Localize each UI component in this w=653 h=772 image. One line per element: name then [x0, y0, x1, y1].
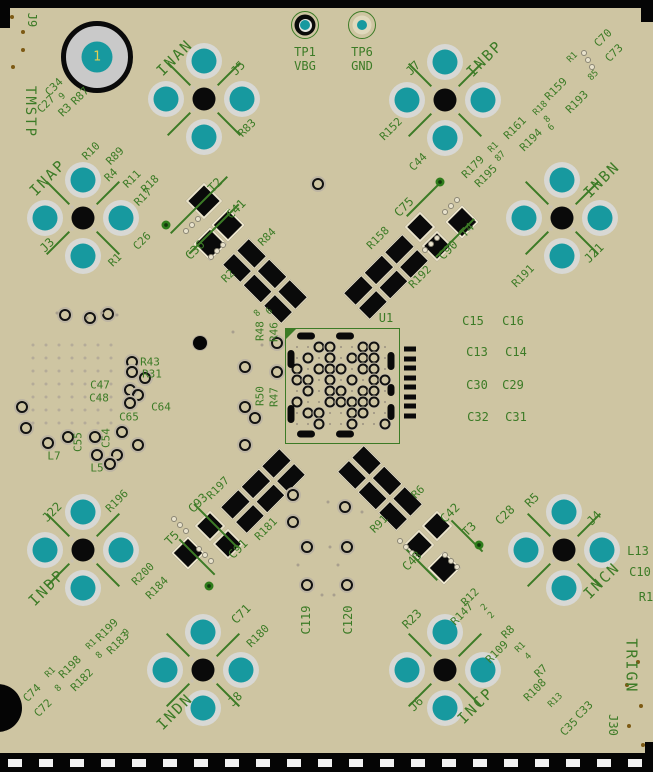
bga-via — [347, 419, 358, 430]
bga-via — [358, 342, 369, 353]
bga-dot — [318, 357, 320, 359]
label-c119: C119 — [300, 606, 312, 635]
solder-pad-dot — [220, 242, 226, 248]
connector-center-pad-j6-incp[interactable] — [434, 659, 457, 682]
connector-pad-j4-incn[interactable] — [552, 576, 577, 601]
label-c32: C32 — [467, 411, 489, 423]
bga-dot — [340, 357, 342, 359]
label-l5: L5 — [90, 463, 103, 474]
edge-dash — [163, 759, 177, 767]
connector-pad-j4-incn[interactable] — [552, 500, 577, 525]
connector-pad-j6-incp[interactable] — [395, 658, 420, 683]
solder-pad-dot — [448, 558, 454, 564]
connector-pad-j3-inap[interactable] — [33, 206, 58, 231]
bga-via — [347, 408, 358, 419]
label-c30: C30 — [466, 379, 488, 391]
connector-center-pad-j3-inap[interactable] — [72, 207, 95, 230]
fiducial-dot — [627, 724, 631, 728]
solder-pad-dot — [428, 241, 434, 247]
label-trign: TRIGN — [624, 638, 639, 693]
bga-dot — [373, 423, 375, 425]
bga-via — [314, 408, 325, 419]
pad-corner-tick — [213, 658, 216, 661]
label-c29: C29 — [502, 379, 524, 391]
pad-dot — [232, 331, 235, 334]
bga-via — [358, 408, 369, 419]
connector-pad-j21-inbn[interactable] — [588, 206, 613, 231]
via-field-dot — [71, 357, 74, 360]
via-field-dot — [32, 370, 35, 373]
bga-dot — [340, 379, 342, 381]
connector-center-pad-j21-inbn[interactable] — [551, 207, 574, 230]
green-via — [475, 541, 484, 550]
via-field-dot — [71, 370, 74, 373]
via — [341, 541, 353, 553]
label-c71: C71 — [229, 602, 253, 626]
edge-dash — [628, 759, 642, 767]
connector-pad-ring — [103, 200, 139, 236]
bga-via — [369, 386, 380, 397]
connector-pad-j7-inbp[interactable] — [471, 88, 496, 113]
label-inbp: INBP — [464, 38, 506, 80]
pad-corner-tick — [93, 560, 96, 563]
label-r197: R197 — [205, 475, 232, 502]
via-field-dot — [97, 344, 100, 347]
bga-via — [347, 353, 358, 364]
via-field-dot — [97, 422, 100, 425]
bga-via — [369, 397, 380, 408]
bga-dot — [351, 368, 353, 370]
label-c28: C28 — [493, 503, 517, 527]
bga-pad — [297, 431, 315, 438]
pad-corner-tick — [433, 680, 436, 683]
pad-corner-tick — [550, 228, 553, 231]
connector-pad-j3-inap[interactable] — [71, 244, 96, 269]
edge-dash — [380, 759, 394, 767]
label-r5: R5 — [523, 491, 542, 510]
label-c14: C14 — [505, 346, 527, 358]
via-field-dot — [58, 396, 61, 399]
label-vbg: VBG — [294, 60, 316, 72]
pad-dot — [261, 344, 264, 347]
bga-dot — [384, 346, 386, 348]
bga-dot — [307, 346, 309, 348]
connector-pad-j5-inan[interactable] — [192, 125, 217, 150]
pad-dot — [56, 312, 59, 315]
edge-dash — [132, 759, 146, 767]
label-r46: R46 — [269, 322, 280, 342]
label-r108: R108 — [522, 677, 549, 704]
bga-pad — [388, 404, 395, 420]
via-field-dot — [84, 409, 87, 412]
via — [271, 366, 283, 378]
label-j9: J9 — [26, 13, 38, 27]
bga-via — [303, 408, 314, 419]
label-r47: R47 — [269, 387, 280, 407]
ic-pin — [404, 413, 416, 418]
via — [91, 449, 103, 461]
bga-dot — [351, 346, 353, 348]
connector-pad-ring — [506, 200, 542, 236]
label-85: 85 — [587, 69, 601, 83]
label-t3: T3 — [460, 520, 479, 539]
bga-pad — [388, 384, 395, 396]
edge-dash — [287, 759, 301, 767]
label-4: 4 — [524, 652, 534, 662]
test-point-tp6[interactable] — [348, 11, 376, 39]
label-r184: R184 — [144, 575, 171, 602]
label-tmstp: TMSTP — [23, 86, 37, 138]
bga-via — [325, 397, 336, 408]
pad-corner-tick — [71, 206, 74, 209]
connector-pad-j7-inbp[interactable] — [433, 126, 458, 151]
via — [239, 439, 251, 451]
pad-dot — [86, 317, 89, 320]
bga-via — [358, 364, 369, 375]
via — [287, 489, 299, 501]
pad-corner-tick — [214, 87, 217, 90]
bga-dot — [307, 401, 309, 403]
via-field-dot — [45, 383, 48, 386]
pad-dot — [321, 594, 324, 597]
via — [116, 426, 128, 438]
test-point-pad[interactable] — [300, 20, 310, 30]
connector-pad-ring — [508, 532, 544, 568]
label-r193: R193 — [564, 89, 591, 116]
edge-dash — [473, 759, 487, 767]
via-field-dot — [71, 396, 74, 399]
ic-pin — [404, 385, 416, 390]
label-c65: C65 — [119, 412, 139, 423]
pad-corner-tick — [192, 87, 195, 90]
bga-dot — [340, 423, 342, 425]
pad-dot — [327, 501, 330, 504]
pad-corner-tick — [572, 228, 575, 231]
pad-dot — [361, 511, 364, 514]
connector-pad-ring — [427, 690, 463, 726]
edge-dash — [8, 759, 22, 767]
label-8: 8 — [95, 651, 105, 661]
connector-pad-j8-indn[interactable] — [229, 658, 254, 683]
connector-pad-ring — [427, 44, 463, 80]
bga-dot — [296, 357, 298, 359]
bga-via — [303, 375, 314, 386]
pad-corner-tick — [574, 538, 577, 541]
bga-dot — [340, 412, 342, 414]
edge-dash — [70, 759, 84, 767]
solder-pad-dot — [183, 528, 189, 534]
ic-pin — [404, 347, 416, 352]
via-field-dot — [110, 409, 113, 412]
label-c47: C47 — [90, 380, 110, 391]
label-r84: R84 — [256, 226, 278, 248]
via-field-dot — [58, 409, 61, 412]
via-field-dot — [84, 383, 87, 386]
bga-dot — [296, 390, 298, 392]
connector-pad-j5-inan[interactable] — [230, 87, 255, 112]
pad-corner-tick — [455, 110, 458, 113]
bga-via — [325, 364, 336, 375]
connector-pad-j5-inan[interactable] — [192, 49, 217, 74]
label-c120: C120 — [342, 606, 354, 635]
label-r194: R194 — [518, 127, 545, 154]
solder-pad-dot — [442, 209, 448, 215]
via-field-dot — [32, 396, 35, 399]
label-j22: J22 — [40, 500, 64, 524]
edge-dash — [194, 759, 208, 767]
connector-pad-j21-inbn[interactable] — [512, 206, 537, 231]
bga-dot — [384, 357, 386, 359]
solder-pad-dot — [214, 248, 220, 254]
bga-dot — [329, 423, 331, 425]
test-point-tp1[interactable] — [291, 11, 319, 39]
connector-center-pad-j7-inbp[interactable] — [434, 89, 457, 112]
label-r43: R43 — [140, 357, 160, 368]
solder-pad-dot — [454, 564, 460, 570]
label-inbn: INBN — [581, 159, 623, 201]
via-field-dot — [32, 344, 35, 347]
label-c48: C48 — [89, 393, 109, 404]
fiducial-dot — [639, 704, 643, 708]
connector-pad-j8-indn[interactable] — [153, 658, 178, 683]
pad-dot — [297, 564, 300, 567]
label-c16: C16 — [502, 315, 524, 327]
label-r180: R180 — [245, 623, 272, 650]
label-j8: J8 — [226, 690, 245, 709]
label-r1: R1 — [44, 666, 58, 680]
label-r10: R10 — [80, 140, 102, 162]
label-j5: J5 — [229, 59, 248, 78]
via — [20, 422, 32, 434]
pad-corner-tick — [433, 88, 436, 91]
fiducial-dot — [10, 15, 14, 19]
ic-pin — [404, 366, 416, 371]
label-c64: C64 — [151, 402, 171, 413]
board-corner-top-left — [0, 8, 10, 28]
edge-dash — [411, 759, 425, 767]
label-incp: INCP — [455, 685, 497, 727]
pad-dot — [116, 314, 119, 317]
label-l13: L13 — [627, 545, 649, 557]
connector-center-pad-j22-indp[interactable] — [72, 539, 95, 562]
pad-corner-tick — [433, 110, 436, 113]
connector-pad-j21-inbn[interactable] — [550, 168, 575, 193]
via — [239, 401, 251, 413]
bga-dot — [384, 412, 386, 414]
pad-corner-tick — [552, 560, 555, 563]
fiducial-dot — [641, 743, 645, 747]
label-r50: R50 — [255, 386, 266, 406]
label-tp6: TP6 — [351, 46, 373, 58]
pad-corner-tick — [192, 109, 195, 112]
connector-pad-j4-incn[interactable] — [514, 538, 539, 563]
board-corner-top-right — [641, 0, 653, 22]
connector-pad-j8-indn[interactable] — [191, 620, 216, 645]
connector-pad-j3-inap[interactable] — [109, 206, 134, 231]
solder-pad-dot — [434, 235, 440, 241]
solder-pad-dot — [454, 197, 460, 203]
bga-via — [369, 342, 380, 353]
via — [124, 397, 136, 409]
bga-via — [369, 364, 380, 375]
label-c26: C26 — [131, 230, 153, 252]
via — [16, 401, 28, 413]
bga-dot — [351, 390, 353, 392]
via — [249, 412, 261, 424]
bga-via — [292, 375, 303, 386]
label-c13: C13 — [466, 346, 488, 358]
connector-pad-ring — [224, 81, 260, 117]
connector-pad-j5-inan[interactable] — [154, 87, 179, 112]
connector-pad-j22-indp[interactable] — [109, 538, 134, 563]
label-c44: C44 — [407, 151, 429, 173]
via — [301, 541, 313, 553]
solder-pad-dot — [581, 50, 587, 56]
bga-pad — [288, 405, 295, 423]
pad-corner-tick — [191, 680, 194, 683]
pad-dot — [333, 594, 336, 597]
label-c73: C73 — [603, 42, 625, 64]
pad-corner-tick — [433, 658, 436, 661]
connector-pad-ring — [27, 200, 63, 236]
bga-via — [347, 397, 358, 408]
via — [239, 361, 251, 373]
bga-pad — [388, 352, 395, 370]
label-tp1: TP1 — [294, 46, 316, 58]
pin1-triangle-icon — [286, 329, 296, 339]
connector-pad-ring — [65, 494, 101, 530]
connector-pad-j6-incp[interactable] — [433, 696, 458, 721]
test-point-pad[interactable] — [357, 20, 367, 30]
edge-dash — [39, 759, 53, 767]
via-field-dot — [58, 383, 61, 386]
pin1-number: 1 — [82, 42, 113, 73]
bga-dot — [318, 401, 320, 403]
via — [42, 437, 54, 449]
via-field-dot — [110, 370, 113, 373]
connector-pad-ring — [427, 120, 463, 156]
connector-pad-j22-indp[interactable] — [71, 576, 96, 601]
bga-dot — [329, 412, 331, 414]
via-field-dot — [58, 357, 61, 360]
via-field-dot — [58, 422, 61, 425]
solder-pad-dot — [442, 552, 448, 558]
label-u1: U1 — [379, 312, 393, 324]
label-incn: INCN — [581, 560, 623, 602]
label-r31: R31 — [142, 369, 162, 380]
label-r152: R152 — [378, 116, 405, 143]
connector-pad-ring — [546, 570, 582, 606]
connector-pad-j22-indp[interactable] — [33, 538, 58, 563]
bga-via — [347, 375, 358, 386]
pad-corner-tick — [550, 206, 553, 209]
label-9: 9 — [58, 92, 68, 102]
label-r48: R48 — [255, 321, 266, 341]
via-field-dot — [110, 383, 113, 386]
solder-pad-dot — [202, 552, 208, 558]
connector-pad-ring — [27, 532, 63, 568]
label-c15: C15 — [462, 315, 484, 327]
bga-pad — [336, 333, 354, 340]
green-via — [162, 221, 171, 230]
mounting-hole-marker[interactable]: 1 — [61, 21, 133, 93]
connector-pad-ring — [546, 494, 582, 530]
connector-pad-ring — [186, 119, 222, 155]
connector-center-pad-j8-indn[interactable] — [192, 659, 215, 682]
bga-dot — [362, 379, 364, 381]
via-field-dot — [32, 383, 35, 386]
bga-via — [358, 386, 369, 397]
connector-pad-j7-inbp[interactable] — [395, 88, 420, 113]
edge-dash — [256, 759, 270, 767]
label-j30: J30 — [607, 714, 619, 736]
bga-via — [303, 386, 314, 397]
via-field-dot — [32, 422, 35, 425]
connector-pad-ring — [103, 532, 139, 568]
bga-via — [314, 364, 325, 375]
label-j21: J21 — [582, 241, 606, 265]
label-r191: R191 — [510, 263, 537, 290]
bga-via — [336, 386, 347, 397]
label-r1: R1 — [566, 51, 580, 65]
connector-pad-ring — [544, 162, 580, 198]
label-c35: C35 — [558, 716, 580, 738]
label-r196: R196 — [104, 488, 131, 515]
bga-via — [325, 386, 336, 397]
connector-pad-j3-inap[interactable] — [71, 168, 96, 193]
via-field-dot — [58, 344, 61, 347]
connector-center-pad-j5-inan[interactable] — [193, 88, 216, 111]
bga-via — [325, 342, 336, 353]
pad-dot — [329, 546, 332, 549]
label-c31: C31 — [505, 411, 527, 423]
bga-via — [358, 353, 369, 364]
label-c33: C33 — [573, 699, 595, 721]
label-c10: C10 — [629, 566, 651, 578]
connector-pad-ring — [389, 82, 425, 118]
connector-pad-j22-indp[interactable] — [71, 500, 96, 525]
label-indp: INDP — [26, 567, 68, 609]
connector-center-pad-j4-incn[interactable] — [553, 539, 576, 562]
label-8: 8 — [54, 684, 64, 694]
via-field-dot — [71, 422, 74, 425]
connector-pad-j7-inbp[interactable] — [433, 50, 458, 75]
pad-corner-tick — [93, 538, 96, 541]
pad-corner-tick — [93, 206, 96, 209]
label-inap: INAP — [27, 157, 69, 199]
via — [104, 458, 116, 470]
solder-pad-dot — [208, 254, 214, 260]
label-r89: R89 — [104, 145, 126, 167]
via-field-dot — [84, 396, 87, 399]
solder-pad-dot — [183, 228, 189, 234]
bga-dot — [307, 368, 309, 370]
via-field-dot — [45, 344, 48, 347]
via-field-dot — [110, 344, 113, 347]
via-field-dot — [58, 370, 61, 373]
pad-corner-tick — [574, 560, 577, 563]
connector-pad-j21-inbn[interactable] — [550, 244, 575, 269]
board-cutout-left — [0, 684, 22, 732]
via — [132, 439, 144, 451]
label-r1: R1 — [106, 251, 123, 268]
solder-pad-dot — [195, 216, 201, 222]
bga-via — [380, 419, 391, 430]
pad-corner-tick — [455, 88, 458, 91]
via-field-dot — [71, 383, 74, 386]
label-r159: R159 — [543, 76, 570, 103]
via-field-dot — [110, 396, 113, 399]
